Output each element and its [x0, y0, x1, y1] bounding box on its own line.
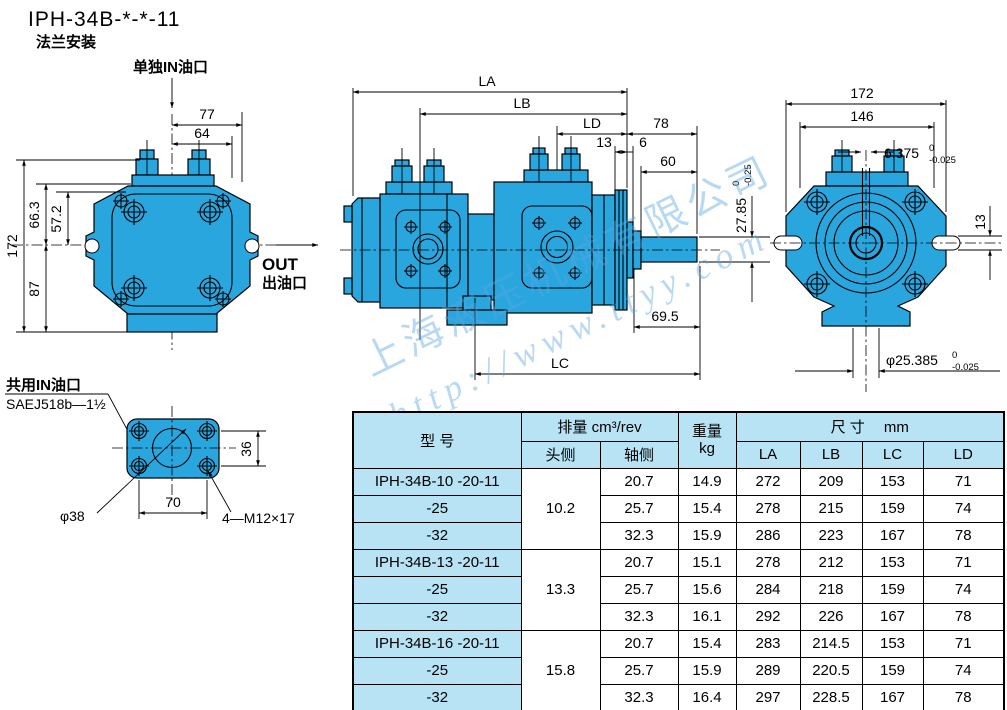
weight-cell: 15.6	[678, 576, 736, 603]
dim-6: 6	[639, 134, 647, 150]
lb-cell: 223	[800, 522, 862, 549]
lb-cell: 215	[800, 495, 862, 522]
la-cell: 286	[736, 522, 800, 549]
head-side-cell: 13.3	[521, 549, 600, 630]
specification-table: 型 号 排量 cm³/rev 重量 kg 尺 寸 mm 头侧 轴侧 LA LB …	[352, 411, 1005, 710]
shaft-side-cell: 32.3	[600, 603, 678, 630]
model-cell: -25	[353, 495, 521, 522]
shared-in-port-label: 共用IN油口	[6, 376, 81, 394]
lc-cell: 153	[862, 468, 923, 495]
out-port-label: 出油口	[262, 274, 307, 292]
dim-69-5: 69.5	[651, 308, 678, 324]
shaft-side-cell: 20.7	[600, 468, 678, 495]
table-row: IPH-34B-13 -20-11 13.3 20.7 15.1 278 212…	[353, 549, 1004, 576]
weight-cell: 15.4	[678, 495, 736, 522]
header-lc: LC	[862, 441, 923, 468]
dim-64: 64	[194, 125, 210, 141]
table-row: -25 25.7 15.6 284 218 159 74	[353, 576, 1004, 603]
dim-shaft-height: 27.85	[733, 198, 749, 233]
model-cell: -32	[353, 603, 521, 630]
datasheet-page: 单独IN油口 77 64	[0, 0, 1007, 710]
ld-cell: 78	[923, 603, 1004, 630]
weight-cell: 15.4	[678, 630, 736, 657]
lb-cell: 218	[800, 576, 862, 603]
table-header-row-1: 型 号 排量 cm³/rev 重量 kg 尺 寸 mm	[353, 412, 1004, 441]
ld-cell: 78	[923, 522, 1004, 549]
table-row: -32 32.3 16.4 297 228.5 167 78	[353, 684, 1004, 710]
separate-in-port-label: 单独IN油口	[133, 58, 208, 76]
header-weight-line1: 重量	[679, 423, 736, 440]
table-row: IPH-34B-10 -20-11 10.2 20.7 14.9 272 209…	[353, 468, 1004, 495]
dim-key-tol-lower: -0.025	[929, 155, 956, 166]
shaft-side-cell: 32.3	[600, 522, 678, 549]
dim-phi-38: φ38	[60, 508, 85, 524]
la-cell: 278	[736, 549, 800, 576]
la-cell: 283	[736, 630, 800, 657]
table-row: -32 32.3 16.1 292 226 167 78	[353, 603, 1004, 630]
page-title: IPH-34B-*-*-11	[28, 8, 181, 32]
ld-cell: 78	[923, 684, 1004, 710]
header-model: 型 号	[353, 412, 521, 468]
la-cell: 292	[736, 603, 800, 630]
ld-cell: 71	[923, 468, 1004, 495]
header-lb: LB	[800, 441, 862, 468]
la-cell: 278	[736, 495, 800, 522]
lc-cell: 167	[862, 522, 923, 549]
weight-cell: 14.9	[678, 468, 736, 495]
dim-172-rear: 172	[850, 85, 874, 101]
lb-cell: 228.5	[800, 684, 862, 710]
dim-lc: LC	[551, 355, 569, 371]
header-shaft-side: 轴侧	[600, 441, 678, 468]
dim-70: 70	[165, 494, 181, 510]
la-cell: 297	[736, 684, 800, 710]
inlet-flange-view: 共用IN油口 SAEJ518b—1½ φ38 4—M12×17 70 36	[5, 376, 295, 526]
sae-flange-label: SAEJ518b—1½	[6, 396, 106, 412]
la-cell: 272	[736, 468, 800, 495]
weight-cell: 16.1	[678, 603, 736, 630]
dim-ld: LD	[583, 115, 601, 131]
side-view: LA LB LD 78 13 6 60 27.85	[340, 73, 770, 380]
la-cell: 284	[736, 576, 800, 603]
rear-view: 172 146 6.375 0 -0.025 13 φ25.385 0 -0.0…	[770, 85, 1003, 392]
dim-13-rear: 13	[972, 214, 988, 230]
dim-87: 87	[26, 281, 42, 297]
shaft-side-cell: 25.7	[600, 495, 678, 522]
weight-cell: 15.9	[678, 522, 736, 549]
lc-cell: 159	[862, 576, 923, 603]
lc-cell: 167	[862, 603, 923, 630]
head-side-cell: 10.2	[521, 468, 600, 549]
dim-shaft-height-tol-upper: 0	[731, 181, 742, 186]
header-ld: LD	[923, 441, 1004, 468]
la-cell: 289	[736, 657, 800, 684]
dim-shaft-height-tol-lower: -0.25	[743, 164, 754, 186]
ld-cell: 74	[923, 495, 1004, 522]
header-head-side: 头侧	[521, 441, 600, 468]
lb-cell: 214.5	[800, 630, 862, 657]
lc-cell: 153	[862, 549, 923, 576]
ld-cell: 74	[923, 657, 1004, 684]
lc-cell: 167	[862, 684, 923, 710]
dim-172: 172	[4, 234, 20, 258]
dim-77: 77	[199, 106, 215, 122]
table-row: -25 25.7 15.9 289 220.5 159 74	[353, 657, 1004, 684]
model-cell: IPH-34B-16 -20-11	[353, 630, 521, 657]
shaft-side-cell: 25.7	[600, 657, 678, 684]
dim-shaft-diameter: φ25.385	[886, 352, 938, 368]
out-label: OUT	[262, 255, 299, 274]
model-cell: -32	[353, 522, 521, 549]
head-side-cell: 15.8	[521, 630, 600, 710]
model-cell: IPH-34B-10 -20-11	[353, 468, 521, 495]
table-row: IPH-34B-16 -20-11 15.8 20.7 15.4 283 214…	[353, 630, 1004, 657]
shaft-side-cell: 25.7	[600, 576, 678, 603]
weight-cell: 15.9	[678, 657, 736, 684]
dim-lb: LB	[513, 95, 530, 111]
lc-cell: 153	[862, 630, 923, 657]
model-cell: -25	[353, 657, 521, 684]
dim-la: LA	[478, 73, 496, 89]
lb-cell: 212	[800, 549, 862, 576]
mounting-type-label: 法兰安装	[36, 31, 96, 52]
dim-key-tol-upper: 0	[929, 143, 934, 154]
header-weight: 重量 kg	[678, 412, 736, 468]
model-cell: IPH-34B-13 -20-11	[353, 549, 521, 576]
front-view: 单独IN油口 77 64	[4, 58, 318, 350]
dim-13: 13	[596, 134, 612, 150]
dim-66-3: 66.3	[26, 201, 42, 228]
ld-cell: 71	[923, 549, 1004, 576]
header-weight-line2: kg	[679, 440, 736, 457]
weight-cell: 16.4	[678, 684, 736, 710]
dim-key-width: 6.375	[884, 145, 919, 161]
ld-cell: 74	[923, 576, 1004, 603]
dim-57-2: 57.2	[48, 205, 64, 232]
ld-cell: 71	[923, 630, 1004, 657]
table-row: -32 32.3 15.9 286 223 167 78	[353, 522, 1004, 549]
table-row: -25 25.7 15.4 278 215 159 74	[353, 495, 1004, 522]
lb-cell: 220.5	[800, 657, 862, 684]
shaft-side-cell: 32.3	[600, 684, 678, 710]
lb-cell: 226	[800, 603, 862, 630]
dim-bolt-spec: 4—M12×17	[222, 510, 295, 526]
model-cell: -32	[353, 684, 521, 710]
dim-shaft-diameter-tol-lower: -0.025	[952, 362, 979, 373]
dim-shaft-diameter-tol-upper: 0	[952, 350, 957, 361]
weight-cell: 15.1	[678, 549, 736, 576]
lb-cell: 209	[800, 468, 862, 495]
dim-146: 146	[850, 108, 874, 124]
header-displacement: 排量 cm³/rev	[521, 412, 678, 441]
dim-60: 60	[660, 153, 676, 169]
lc-cell: 159	[862, 657, 923, 684]
header-dimensions: 尺 寸 mm	[736, 412, 1004, 441]
dim-36: 36	[238, 441, 254, 457]
shaft-side-cell: 20.7	[600, 630, 678, 657]
dim-78: 78	[653, 115, 669, 131]
header-la: LA	[736, 441, 800, 468]
lc-cell: 159	[862, 495, 923, 522]
shaft-side-cell: 20.7	[600, 549, 678, 576]
model-cell: -25	[353, 576, 521, 603]
